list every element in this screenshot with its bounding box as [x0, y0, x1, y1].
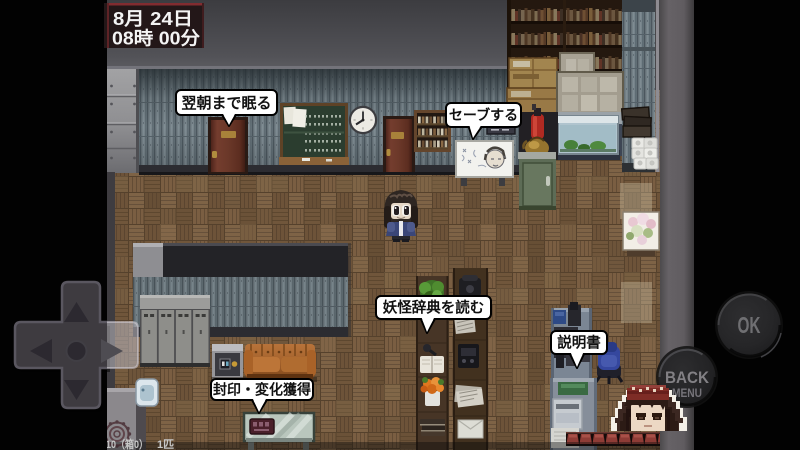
svg-text:翌朝まで眠る: 翌朝まで眠る — [181, 95, 271, 112]
svg-text:08時 00分: 08時 00分 — [112, 29, 200, 49]
svg-text:1匹: 1匹 — [157, 438, 174, 450]
svg-text:10（箱0）: 10（箱0） — [106, 437, 148, 450]
svg-text:BACK: BACK — [665, 368, 710, 387]
svg-text:セーブする: セーブする — [449, 107, 518, 123]
svg-text:8月 24日: 8月 24日 — [113, 9, 193, 29]
svg-text:MENU: MENU — [672, 388, 702, 400]
svg-text:説明書: 説明書 — [557, 334, 601, 352]
svg-text:妖怪辞典を読む: 妖怪辞典を読む — [383, 299, 485, 317]
svg-text:封印・変化獲得: 封印・変化獲得 — [213, 382, 311, 398]
svg-text:OK: OK — [738, 312, 761, 338]
